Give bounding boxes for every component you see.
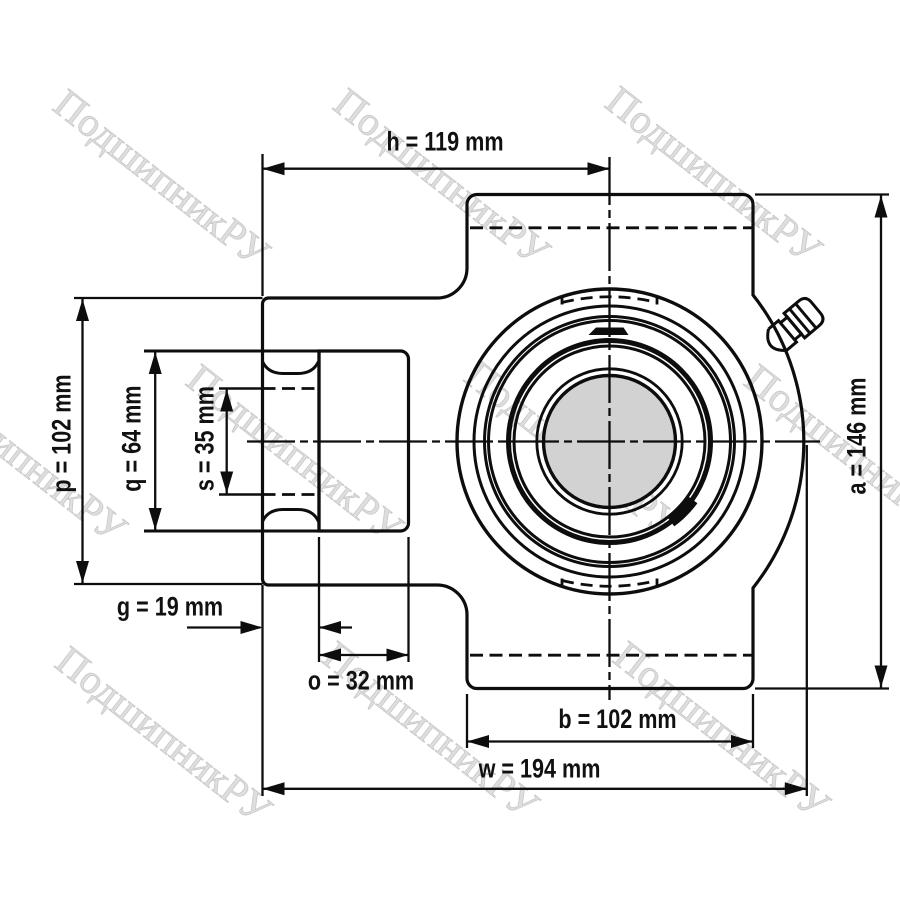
svg-text:g = 19 mm: g = 19 mm bbox=[117, 592, 223, 622]
svg-text:w = 194 mm: w = 194 mm bbox=[478, 754, 601, 784]
svg-text:o = 32 mm: o = 32 mm bbox=[308, 666, 414, 696]
svg-text:a = 146 mm: a = 146 mm bbox=[842, 377, 872, 494]
svg-text:q = 64 mm: q = 64 mm bbox=[117, 385, 147, 491]
svg-text:h = 119 mm: h = 119 mm bbox=[386, 127, 503, 157]
svg-text:b = 102 mm: b = 102 mm bbox=[558, 705, 676, 735]
svg-text:s = 35 mm: s = 35 mm bbox=[190, 386, 220, 491]
svg-text:p = 102 mm: p = 102 mm bbox=[47, 374, 77, 492]
